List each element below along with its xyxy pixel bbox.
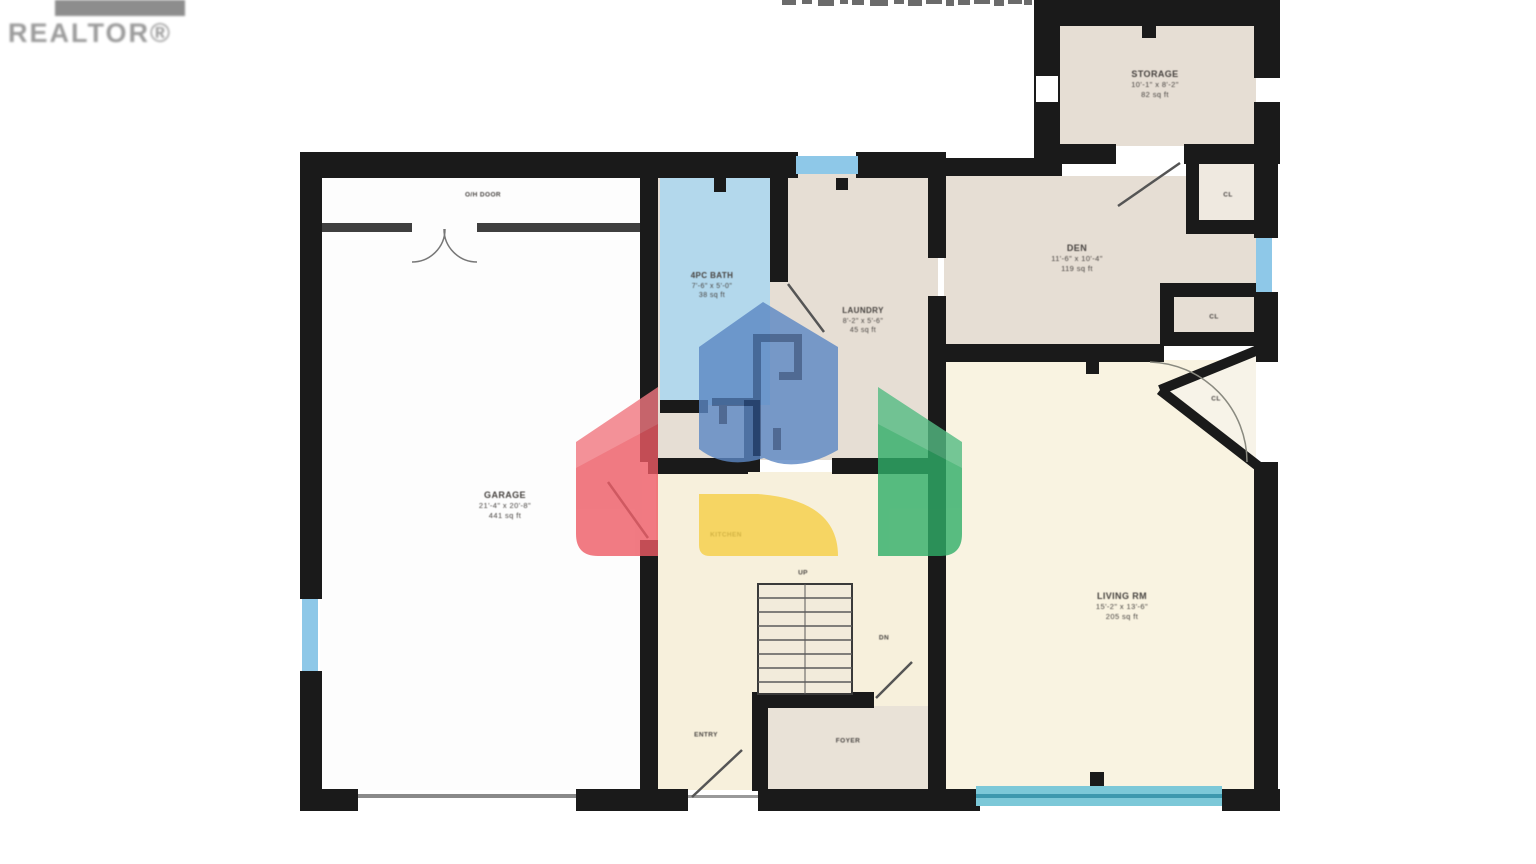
storage-label: STORAGE 10'-1" x 8'-2" 82 sq ft [1131, 68, 1179, 100]
garage-label: GARAGE 21'-4" x 20'-8" 441 sq ft [479, 489, 531, 521]
floorplan-drawing [0, 0, 1536, 864]
laundry-label: LAUNDRY 8'-2" x 5'-6" 45 sq ft [842, 306, 884, 336]
living-label: LIVING RM 15'-2" x 13'-6" 205 sq ft [1096, 590, 1148, 622]
front-door-label: ENTRY [694, 732, 718, 741]
realtor-logo-block [55, 0, 185, 16]
realtor-logo-text: REALTOR® [8, 18, 172, 49]
kitchen-label: KITCHEN [710, 532, 742, 541]
cropped-text-marks [782, 0, 1032, 6]
garage-door-label: O/H DOOR [465, 192, 501, 201]
foyer-floor [768, 706, 930, 791]
garage-door-line [358, 794, 576, 798]
foyer-label: FOYER [836, 738, 860, 747]
closet-mid-label: CL [1209, 314, 1218, 323]
closet-corner-label: CL [1211, 396, 1220, 405]
stair-closet-label: DN [879, 635, 889, 644]
stairs-label: UP [798, 570, 808, 579]
floorplan-image: GARAGE 21'-4" x 20'-8" 441 sq ft O/H DOO… [0, 0, 1536, 864]
front-door-sill [688, 795, 758, 798]
garage-window [302, 599, 318, 671]
side-window [1256, 238, 1272, 292]
den-label: DEN 11'-6" x 10'-4" 119 sq ft [1051, 242, 1103, 274]
closet-top-label: CL [1223, 192, 1232, 201]
hall-window [796, 156, 858, 174]
bathroom-label: 4PC BATH 7'-6" x 5'-0" 38 sq ft [691, 271, 734, 301]
